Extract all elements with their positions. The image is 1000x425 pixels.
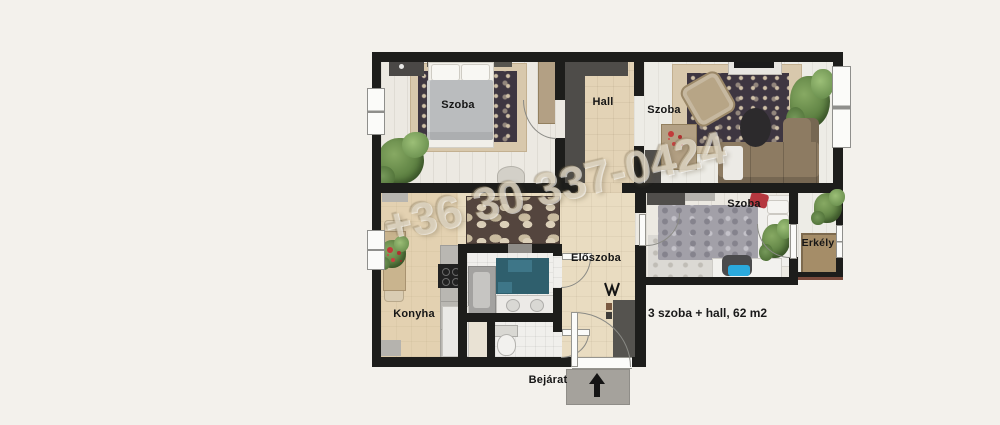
wall-bathroom-left [458, 244, 467, 357]
coat-hooks-icon [604, 282, 620, 296]
bedroom2-door-leaf [639, 214, 646, 246]
wall-bedroom1-right-upper [555, 62, 565, 100]
bedroom2-shelf [685, 193, 715, 201]
hall-label: Hall [593, 96, 614, 108]
balcony-label: Erkély [802, 237, 835, 249]
entryhall-shoe-2 [606, 312, 612, 319]
wall-pantry-divider [487, 322, 495, 357]
living-cabinet [645, 150, 661, 186]
kitchen-stove-burner3 [442, 278, 450, 286]
floorplan-canvas: Szoba Hall Szoba Szoba Erkély Konyha Elő… [0, 0, 1000, 425]
bathroom-shower-tray [473, 272, 490, 308]
wall-mid-left [372, 183, 578, 193]
hall-living-opening [634, 96, 644, 146]
living-coffee-table [740, 108, 771, 147]
living-side-table [661, 124, 697, 170]
balcony-bottom-accent [798, 277, 843, 280]
bedroom2-wardrobe [647, 193, 685, 205]
pantry-floor [467, 322, 487, 357]
wall-top [372, 52, 843, 62]
summary-text: 3 szoba + hall, 62 m2 [648, 306, 767, 320]
kitchen-stove-burner1 [442, 268, 450, 276]
hall-closet-vertical [565, 62, 585, 183]
bathroom-sink-1 [506, 299, 520, 312]
corridor-rug [466, 196, 560, 244]
entryhall-shoe-1 [606, 303, 612, 310]
bedroom1-window [367, 88, 385, 135]
bedroom1-dresser-knob [399, 64, 404, 69]
bedroom2-label: Szoba [727, 198, 760, 210]
entrance-arrow-shaft [594, 383, 600, 397]
bathroom-sink-counter [496, 295, 555, 315]
bathroom-towel-1 [508, 260, 532, 272]
kitchen-shelf [382, 193, 408, 202]
wall-entryhall-right-upper [635, 193, 646, 213]
wall-entryhall-right-lower [635, 245, 646, 357]
wall-bathroom-mid [458, 313, 562, 322]
wall-bathroom-right-a [553, 244, 562, 256]
kitchen-label: Konyha [393, 308, 435, 320]
bathroom-towel-2 [498, 282, 512, 293]
bathroom-sink-2 [530, 299, 544, 312]
entrance-arrow-icon [589, 373, 605, 399]
bedroom1-door-opening [555, 100, 565, 138]
kitchen-corner-cabinet [381, 340, 401, 356]
wall-bathroom-right-b [553, 288, 562, 332]
living-side-table-flowers [668, 131, 674, 137]
wall-bedroom1-right-lower [555, 138, 565, 183]
bathroom-wall-cabinet [508, 244, 532, 253]
bedroom1-pillow-left [431, 64, 460, 81]
entrance-door-leaf [571, 312, 578, 367]
wall-hall-right-upper [634, 62, 644, 96]
wall-hall-right-lower [634, 146, 644, 183]
wall-bottom-left [372, 357, 572, 367]
wall-bottom-right [632, 357, 646, 367]
wall-bedroom2-bottom [646, 277, 798, 285]
toilet-bowl [497, 334, 516, 356]
living-sofa-throw [723, 146, 743, 180]
balcony-railing-window [836, 225, 843, 258]
entryhall-label: Előszoba [571, 252, 621, 264]
hall-entryhall-opening [578, 183, 622, 193]
living-tv [734, 62, 774, 68]
bedroom2-chair-seat [728, 265, 750, 276]
wall-bedroom2-right-upper [789, 193, 798, 224]
kitchen-window [367, 230, 385, 270]
balcony-door-leaf [790, 224, 797, 259]
bedroom1-label: Szoba [441, 99, 474, 111]
kitchen-plant-flowers [387, 247, 393, 253]
entrance-label: Bejárat [529, 374, 568, 386]
wall-mid-right [622, 183, 843, 193]
living-room-window [832, 66, 851, 148]
hall-closet-top [585, 62, 628, 76]
living-room-label: Szoba [647, 104, 680, 116]
bedroom2-pillow-1 [767, 200, 789, 214]
bedroom1-pillow-right [461, 64, 490, 81]
